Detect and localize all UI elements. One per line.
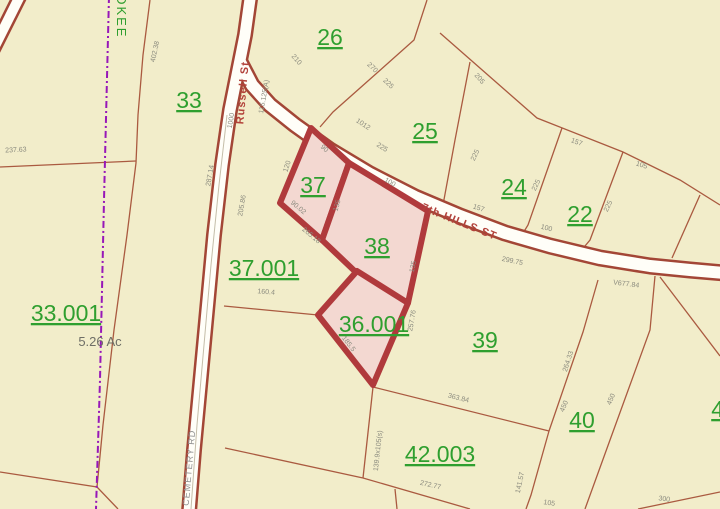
parcel-label-24[interactable]: 24 — [501, 174, 527, 200]
parcel-label-37[interactable]: 37 — [300, 172, 326, 198]
dimension-label: 160.4 — [257, 288, 275, 297]
parcel-label-33[interactable]: 33 — [176, 87, 202, 113]
dimension-label: 225 — [375, 142, 389, 154]
parcel-boundary-line — [363, 387, 373, 478]
parcel-boundary-line — [225, 448, 363, 478]
parcel-boundary-line — [672, 195, 700, 258]
parcel-boundary-line — [373, 387, 549, 431]
parcel-label-33.001[interactable]: 33.001 — [31, 300, 101, 326]
dimension-label: 402.38 — [150, 40, 161, 63]
dimension-label: 205 — [473, 72, 486, 85]
street-labels-layer: Russell St7th HILLS STCEMETERY RDCHEROKE… — [114, 0, 499, 506]
dimension-label: 299.75 — [501, 256, 524, 267]
parcel-boundary-line — [0, 161, 136, 167]
parcel-boundary-line — [443, 62, 470, 205]
parcel-label-40[interactable]: 40 — [569, 407, 595, 433]
dimension-label: 363.84 — [447, 393, 470, 405]
parcel-labels-layer: 2633252422373837.00136.00133.001394042.0… — [31, 24, 720, 467]
parcel-label-22[interactable]: 22 — [567, 201, 593, 227]
parcel-boundary-line — [638, 492, 720, 509]
parcel-boundary-line — [440, 33, 720, 205]
parcel-label-36.001[interactable]: 36.001 — [339, 311, 409, 337]
parcel-boundary-line — [585, 276, 655, 509]
dimension-label: 210 — [290, 53, 303, 66]
dimension-label: 1012 — [354, 118, 371, 132]
parcel-label-25[interactable]: 25 — [412, 118, 438, 144]
dimension-label: 139.9x105(s) — [373, 430, 384, 471]
parcel-label-42.003[interactable]: 42.003 — [405, 441, 475, 467]
parcel-label-26[interactable]: 26 — [317, 24, 343, 50]
parcel-boundary-line — [0, 472, 118, 509]
acreage-label: 5.26 Ac — [78, 334, 122, 349]
parcel-boundary-line — [224, 306, 318, 315]
dimension-label: 157 — [570, 137, 583, 148]
parcel-boundary-line — [363, 478, 470, 509]
dimension-label: 225 — [470, 149, 481, 163]
parcel-label-37.001[interactable]: 37.001 — [229, 255, 299, 281]
dimension-label: V677.84 — [613, 279, 640, 289]
parcel-boundary-line — [395, 489, 397, 509]
parcel-label-38[interactable]: 38 — [364, 233, 390, 259]
parcel-label-39[interactable]: 39 — [472, 327, 498, 353]
dimension-label: 237.63 — [5, 146, 27, 154]
dimension-label: 272.77 — [419, 480, 442, 492]
dimension-label: 450 — [606, 393, 617, 407]
dimension-label: 300 — [658, 495, 671, 503]
dimension-label: 105 — [635, 160, 648, 170]
dimension-label: 225 — [381, 77, 394, 90]
dimension-labels-layer: 402.38237.631000115.125(A)287.14205.8621… — [5, 40, 670, 507]
parcel-map-viewport[interactable]: 402.38237.631000115.125(A)287.14205.8621… — [0, 0, 720, 509]
parcel-boundary-line — [97, 0, 150, 487]
parcel-label-41[interactable]: 41 — [711, 396, 720, 422]
dimension-label: 100 — [540, 224, 553, 234]
dimension-label: 105 — [543, 499, 556, 508]
parcel-boundary-line — [660, 277, 720, 356]
street-label-cherokee: CHEROKEE — [114, 0, 129, 38]
dimension-label: 205.86 — [237, 194, 248, 216]
dimension-label: 141.57 — [515, 471, 526, 494]
parcel-map[interactable]: 402.38237.631000115.125(A)287.14205.8621… — [0, 0, 720, 509]
parcel-boundary-line — [526, 431, 549, 509]
